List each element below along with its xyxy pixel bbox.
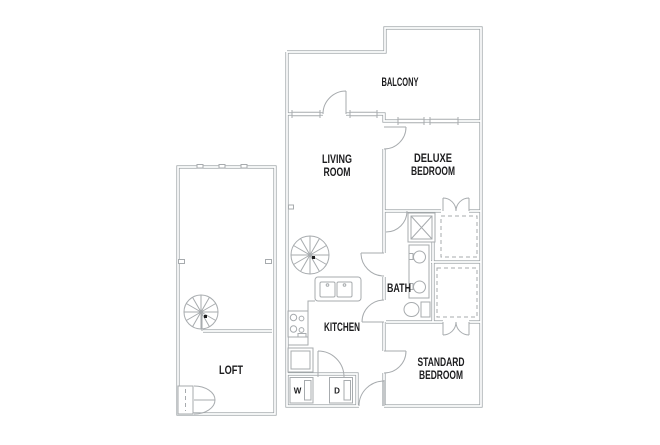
loft-unit-plan: LOFT [178, 165, 275, 415]
bath-vanity [409, 245, 429, 298]
kitchen-counter [288, 301, 315, 345]
shower-icon [408, 213, 435, 242]
wall-tab [266, 260, 272, 264]
kitchen-sink-counter [315, 277, 361, 301]
living-room-label-line1: LIVING [322, 152, 352, 166]
bath-inner-door [386, 211, 407, 232]
standard-closet [437, 268, 477, 317]
stove-icon [288, 311, 308, 337]
window-tick [219, 165, 225, 169]
standard-bedroom-door [384, 351, 406, 373]
bath-door [361, 253, 384, 276]
window [350, 110, 377, 118]
wall-tab [289, 205, 294, 209]
window [292, 110, 320, 118]
balcony-door [323, 91, 346, 114]
window-tick [197, 165, 203, 169]
loft-entry-door [178, 386, 215, 414]
entry-door [359, 380, 384, 406]
spiral-staircase-icon [291, 236, 329, 274]
deluxe-bedroom-label-line2: BEDROOM [411, 164, 455, 178]
floor-plan-page: LOFT [0, 0, 660, 445]
standard-bedroom-label-line2: BEDROOM [419, 368, 463, 382]
deluxe-bedroom-label-line1: DELUXE [414, 151, 452, 165]
deluxe-bedroom-door [384, 127, 406, 149]
deluxe-closet [441, 216, 477, 257]
washer-label: W [294, 387, 302, 396]
kitchen-label: KITCHEN [324, 320, 360, 334]
standard-bedroom-label-line1: STANDARD [418, 355, 465, 369]
living-room-label-line2: ROOM [324, 165, 351, 179]
window [398, 117, 424, 125]
stair-direction-dot [204, 315, 207, 318]
bath-lower-door [362, 300, 384, 322]
deluxe-closet-doors [443, 198, 469, 211]
window [430, 117, 458, 125]
pantry-cabinet [288, 348, 313, 372]
balcony-label: BALCONY [382, 75, 419, 89]
standard-closet-doors [443, 322, 469, 335]
apartment-unit-plan: BALCONY LIVING ROOM DELUXE BEDROOM BATH … [287, 28, 481, 406]
window-tick [241, 165, 247, 169]
dryer-label: D [334, 387, 340, 396]
toilet-icon [404, 302, 430, 317]
loft-label: LOFT [219, 363, 244, 377]
wall-tab [179, 260, 185, 264]
floor-plan-canvas: LOFT [0, 0, 660, 445]
dryer-unit [330, 378, 353, 404]
spiral-staircase-icon [184, 295, 218, 331]
bath-label: BATH [387, 281, 411, 295]
stair-direction-dot [312, 256, 315, 259]
